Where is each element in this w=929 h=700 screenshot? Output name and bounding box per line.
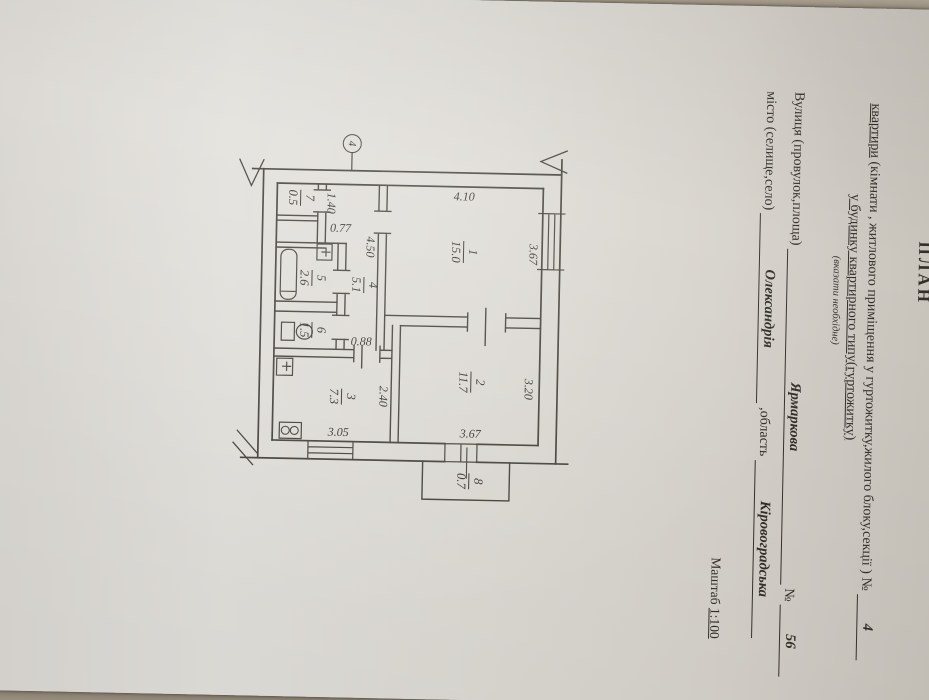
wall-room2-kitchen [390, 325, 400, 442]
room-number: 8 [469, 473, 485, 489]
window-kitchen [308, 441, 353, 460]
stove-burner [281, 426, 289, 434]
dim-3-67-room2: 3.67 [460, 426, 481, 441]
kitchen-sink [276, 358, 292, 375]
dim-4-10-room1: 4.10 [454, 189, 475, 204]
room-label-6: 6 1.5 [297, 322, 327, 338]
room-area: 7.3 [327, 388, 342, 404]
dim-3-05-kitchen: 3.05 [328, 425, 349, 440]
wall-room1-corridor [372, 185, 391, 350]
dim-1-40-room7: 1.40 [323, 193, 338, 214]
balcony-door [445, 444, 477, 463]
room-label-4: 4 5.1 [349, 277, 379, 293]
dim-3-20-room2: 3.20 [520, 379, 535, 400]
room-number: 3 [341, 389, 357, 405]
top-wall [538, 160, 562, 464]
room-label-2: 2 11.7 [456, 371, 486, 393]
room-number: 4 [364, 277, 380, 293]
room-area: 0.7 [454, 473, 469, 489]
room-number: 2 [471, 372, 487, 393]
left-wall [252, 169, 561, 189]
dim-4-50-corridor: 4.50 [362, 236, 377, 257]
toilet [281, 322, 294, 340]
break-mark-bottom-left [239, 159, 264, 185]
dim-2-40-kitchen: 2.40 [375, 386, 390, 407]
room-label-7: 7 0.5 [286, 189, 316, 205]
room-label-3: 3 7.3 [327, 388, 357, 404]
room-area: 0.5 [286, 189, 301, 205]
break-mark-bottom-right [233, 430, 258, 464]
wall-room1-room2 [384, 306, 541, 346]
dim-0-77-corridor: 0.77 [330, 221, 351, 236]
room-label-8: 8 0.7 [454, 473, 484, 489]
room-area: 2.6 [297, 270, 312, 286]
room-area: 1.5 [297, 322, 312, 338]
wall-room7-closet [277, 215, 318, 221]
floor-plan [0, 0, 929, 700]
dim-0-88-corridor: 0.88 [350, 334, 371, 349]
room-number: 5 [312, 270, 328, 286]
break-mark-top-left [541, 151, 567, 174]
room-area: 15.0 [449, 241, 464, 263]
room-number: 7 [300, 190, 316, 206]
wall-corridor-bath-wc [332, 243, 350, 349]
wall-bath-wc [275, 301, 337, 312]
wall-kitchen-left [274, 344, 392, 368]
document-paper: ПЛАН квартири (кімнати , житлового примі… [0, 0, 929, 700]
room-area: 11.7 [456, 371, 471, 392]
room-label-1: 1 15.0 [449, 241, 479, 263]
wall-closet-bath [276, 242, 346, 248]
room-label-5: 5 2.6 [297, 270, 327, 286]
room-number: 6 [312, 322, 328, 338]
stove-burner [290, 426, 298, 434]
dim-3-67-room1: 3.67 [525, 244, 540, 265]
photo-background: ПЛАН квартири (кімнати , житлового примі… [0, 0, 929, 700]
bottom-wall [258, 169, 278, 458]
bath-sink [317, 244, 332, 260]
room-number: 1 [463, 241, 479, 263]
right-wall [241, 439, 568, 464]
room-area: 5.1 [349, 277, 364, 293]
